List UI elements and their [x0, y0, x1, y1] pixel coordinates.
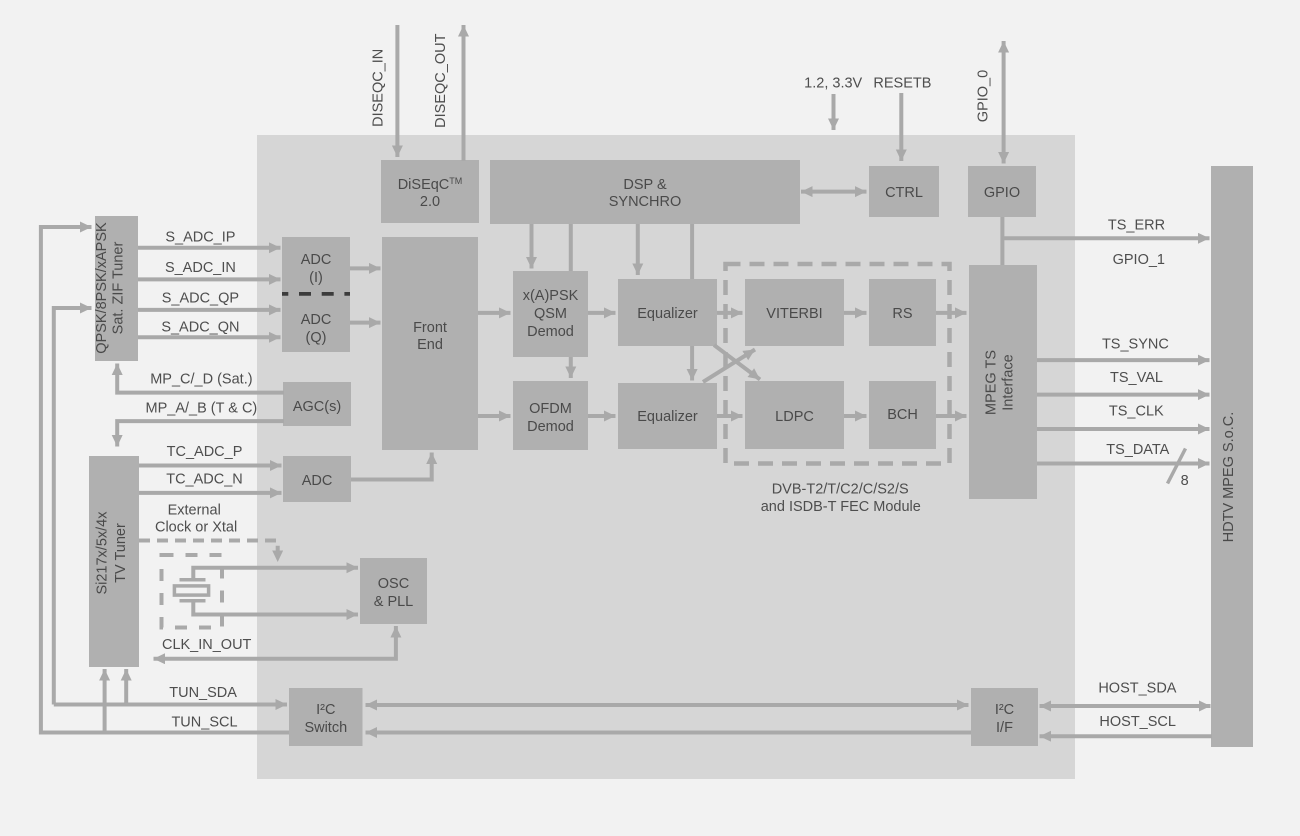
svg-text:GPIO_0: GPIO_0 [975, 70, 991, 122]
svg-text:Demod: Demod [527, 324, 574, 340]
svg-text:S_ADC_IP: S_ADC_IP [165, 230, 235, 246]
svg-text:x(A)PSK: x(A)PSK [523, 288, 579, 304]
svg-text:MPEG TS: MPEG TS [983, 350, 999, 415]
svg-text:HOST_SDA: HOST_SDA [1098, 681, 1176, 697]
svg-text:DSP &: DSP & [623, 177, 667, 193]
svg-text:GPIO: GPIO [984, 185, 1020, 201]
svg-text:I²C: I²C [316, 702, 335, 718]
svg-text:TS_DATA: TS_DATA [1106, 442, 1169, 458]
svg-text:End: End [417, 337, 443, 353]
svg-text:LDPC: LDPC [775, 409, 814, 425]
svg-text:Clock or Xtal: Clock or Xtal [155, 520, 237, 536]
svg-text:Switch: Switch [304, 720, 347, 736]
svg-text:(Q): (Q) [306, 330, 327, 346]
svg-text:RESETB: RESETB [873, 76, 931, 92]
svg-text:I²C: I²C [995, 702, 1014, 718]
svg-text:QPSK/8PSK/xAPSK: QPSK/8PSK/xAPSK [94, 222, 110, 354]
svg-text:DVB-T2/T/C2/C/S2/S: DVB-T2/T/C2/C/S2/S [772, 482, 909, 498]
svg-text:1.2, 3.3V: 1.2, 3.3V [804, 76, 862, 92]
svg-text:and ISDB-T FEC Module: and ISDB-T FEC Module [761, 499, 921, 515]
svg-text:Interface: Interface [1001, 354, 1017, 410]
svg-text:ADC: ADC [302, 473, 333, 489]
svg-text:ADC: ADC [301, 252, 332, 268]
svg-text:S_ADC_IN: S_ADC_IN [165, 260, 236, 276]
svg-text:VITERBI: VITERBI [766, 306, 822, 322]
svg-text:GPIO_1: GPIO_1 [1113, 252, 1165, 268]
svg-text:TS_VAL: TS_VAL [1110, 370, 1163, 386]
svg-text:2.0: 2.0 [420, 194, 440, 210]
svg-text:TS_ERR: TS_ERR [1108, 218, 1165, 234]
svg-text:DISEQC_IN: DISEQC_IN [371, 49, 387, 127]
svg-text:Demod: Demod [527, 419, 574, 435]
svg-text:SYNCHRO: SYNCHRO [609, 194, 682, 210]
svg-text:TS_SYNC: TS_SYNC [1102, 337, 1169, 353]
svg-text:TS_CLK: TS_CLK [1109, 404, 1164, 420]
svg-text:Equalizer: Equalizer [637, 409, 698, 425]
svg-text:AGC(s): AGC(s) [293, 399, 341, 415]
svg-text:HDTV MPEG S.o.C.: HDTV MPEG S.o.C. [1221, 412, 1237, 543]
svg-text:S_ADC_QP: S_ADC_QP [162, 291, 239, 307]
svg-text:& PLL: & PLL [374, 594, 414, 610]
svg-text:DISEQC_OUT: DISEQC_OUT [433, 33, 449, 127]
svg-text:ADC: ADC [301, 312, 332, 328]
svg-text:CTRL: CTRL [885, 185, 923, 201]
svg-text:(I): (I) [309, 270, 323, 286]
svg-text:Front: Front [413, 320, 447, 336]
svg-text:MP_C/_D (Sat.): MP_C/_D (Sat.) [150, 372, 252, 388]
svg-text:S_ADC_QN: S_ADC_QN [161, 319, 239, 335]
svg-text:BCH: BCH [887, 407, 918, 423]
svg-text:TUN_SCL: TUN_SCL [171, 715, 237, 731]
svg-text:OSC: OSC [378, 576, 409, 592]
svg-text:TC_ADC_P: TC_ADC_P [167, 444, 243, 460]
svg-text:RS: RS [892, 306, 912, 322]
svg-text:Sat. ZIF Tuner: Sat. ZIF Tuner [110, 241, 126, 334]
svg-text:Equalizer: Equalizer [637, 306, 698, 322]
svg-text:OFDM: OFDM [529, 401, 572, 417]
svg-text:TV Tuner: TV Tuner [113, 523, 129, 583]
svg-text:I/F: I/F [996, 720, 1013, 736]
svg-text:QSM: QSM [534, 306, 567, 322]
svg-text:Si217x/5x/4x: Si217x/5x/4x [94, 511, 110, 595]
svg-text:CLK_IN_OUT: CLK_IN_OUT [162, 637, 252, 653]
svg-text:HOST_SCL: HOST_SCL [1099, 714, 1176, 730]
svg-text:TUN_SDA: TUN_SDA [169, 685, 237, 701]
svg-text:8: 8 [1181, 473, 1189, 489]
svg-text:MP_A/_B (T & C): MP_A/_B (T & C) [146, 401, 258, 417]
svg-text:External: External [168, 503, 221, 519]
svg-text:TC_ADC_N: TC_ADC_N [166, 472, 243, 488]
